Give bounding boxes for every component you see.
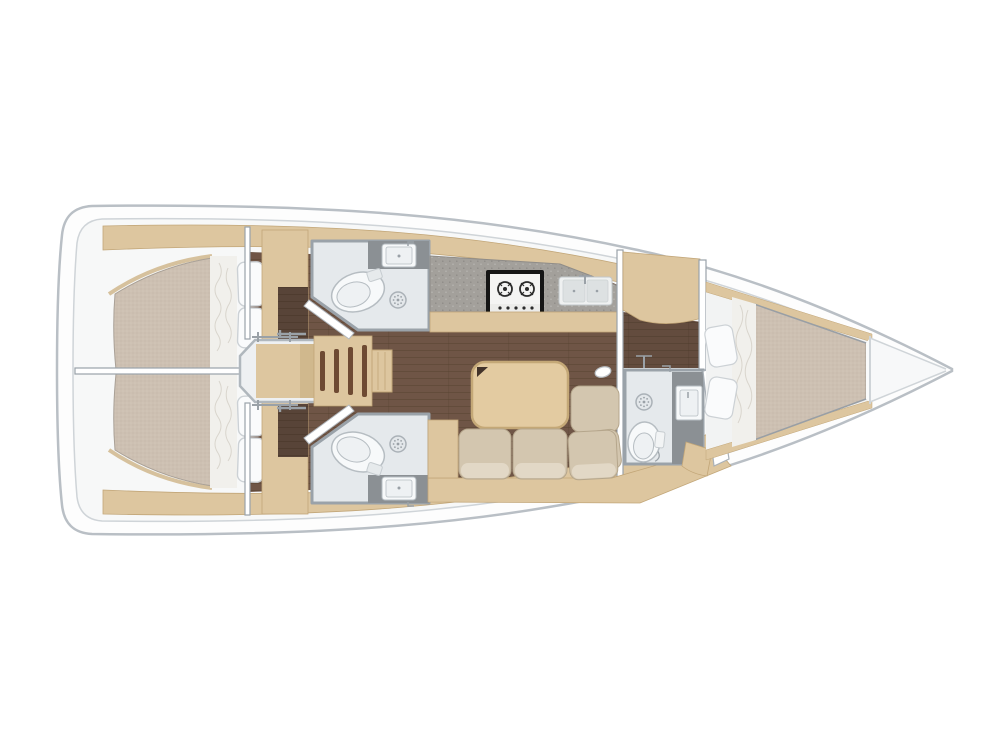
pillow — [704, 324, 739, 368]
seat-cushion — [568, 430, 618, 480]
companionway — [240, 332, 392, 410]
stair-landing — [372, 350, 392, 392]
stove — [486, 270, 544, 314]
shower-drain — [636, 394, 652, 410]
pillow — [237, 438, 265, 483]
aft-cabin-floor-well — [278, 404, 308, 457]
shower-drain — [390, 292, 406, 308]
galley-sink — [559, 276, 612, 305]
aft-cabin-floor-well — [278, 287, 308, 340]
forward-cabin-door — [699, 260, 706, 370]
pillow — [237, 262, 265, 307]
seat-cushion — [513, 429, 567, 479]
aft-bed-sheet — [210, 374, 237, 488]
stair-shading — [300, 344, 314, 398]
salon-table — [472, 362, 568, 428]
head-sink — [676, 386, 702, 420]
forward-cabin — [704, 282, 872, 460]
head-sink — [382, 242, 416, 267]
yacht-floor-plan — [0, 0, 993, 745]
aft-bulkhead-port — [245, 227, 250, 339]
seat-cushion — [459, 429, 511, 479]
pillow — [704, 376, 739, 420]
galley-lower-cabinet — [430, 312, 620, 332]
aft-bulkhead-starboard — [245, 403, 250, 515]
nav-cabinet — [623, 252, 702, 324]
shower-drain — [390, 436, 406, 452]
back-cushion — [571, 386, 619, 432]
centerline-bulkhead — [75, 368, 249, 374]
floor-plan-drawing — [0, 0, 993, 745]
sofa-end-cabinet — [428, 420, 458, 478]
vberth-sheet — [732, 297, 756, 447]
aft-bed-sheet — [210, 256, 237, 370]
